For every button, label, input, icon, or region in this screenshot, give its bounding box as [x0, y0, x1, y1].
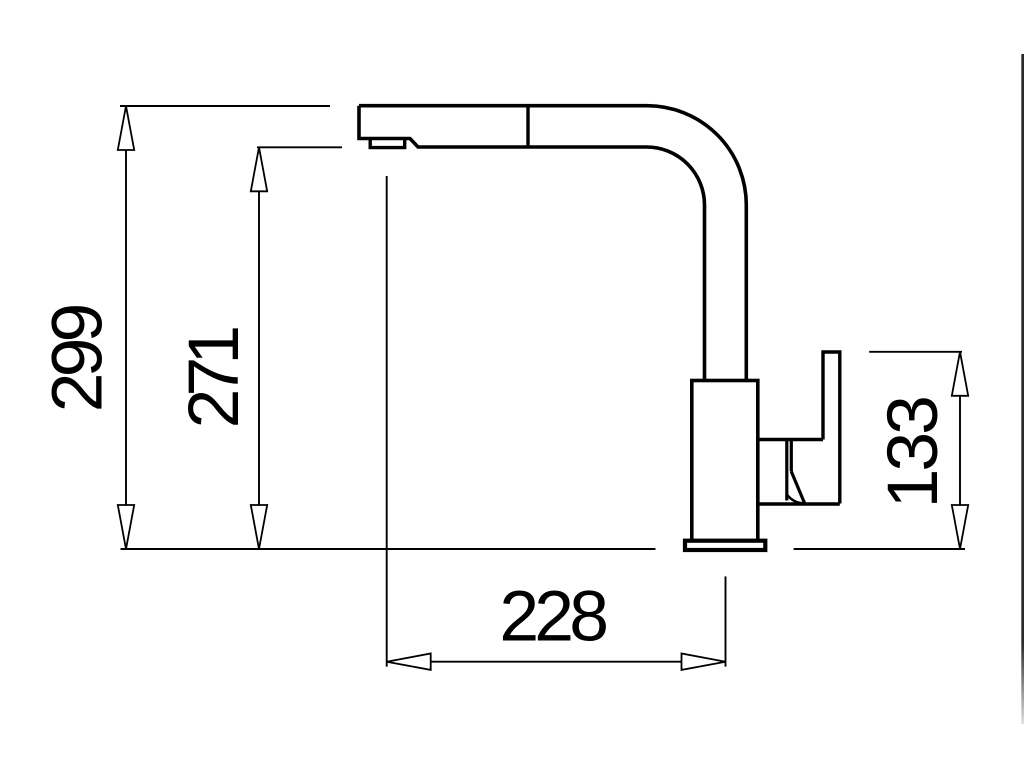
svg-text:271: 271 — [174, 328, 254, 429]
svg-text:133: 133 — [873, 398, 953, 509]
svg-text:299: 299 — [38, 305, 118, 412]
svg-text:228: 228 — [499, 577, 606, 657]
